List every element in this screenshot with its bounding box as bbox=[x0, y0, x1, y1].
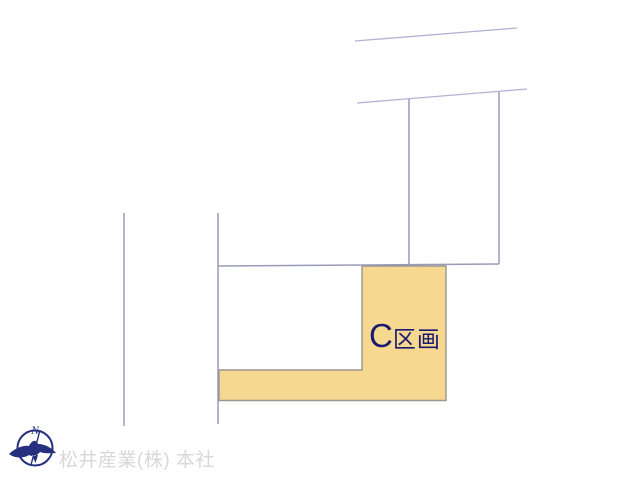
plot-layout-diagram: N C区画 松井産業(株) 本社 bbox=[0, 0, 640, 480]
compass-north-label: N bbox=[30, 423, 40, 437]
road-edge-line bbox=[355, 28, 517, 41]
section-word: 区画 bbox=[393, 326, 441, 352]
section-c-label: C区画 bbox=[369, 319, 441, 352]
compass-icon: N bbox=[9, 423, 56, 466]
parcel-map-canvas: N bbox=[0, 0, 640, 480]
parcel-boundary-line bbox=[218, 264, 499, 266]
section-letter: C bbox=[369, 317, 393, 354]
company-watermark: 松井産業(株) 本社 bbox=[59, 451, 215, 472]
road-edge-line bbox=[357, 89, 527, 103]
